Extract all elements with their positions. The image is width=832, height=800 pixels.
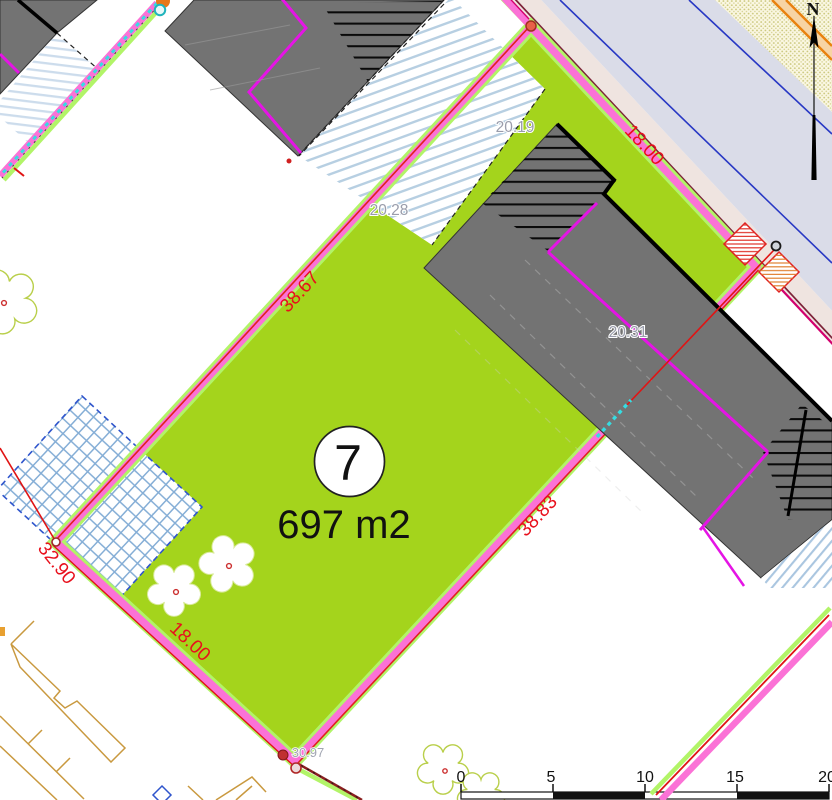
svg-text:5: 5 xyxy=(547,769,556,786)
svg-text:15: 15 xyxy=(726,769,744,786)
svg-text:20.31: 20.31 xyxy=(609,324,648,341)
svg-text:20: 20 xyxy=(818,769,832,786)
svg-text:20.28: 20.28 xyxy=(370,202,409,219)
svg-text:20.19: 20.19 xyxy=(496,119,535,136)
svg-text:30.97: 30.97 xyxy=(292,745,325,760)
svg-text:697 m2: 697 m2 xyxy=(277,503,410,547)
svg-text:7: 7 xyxy=(334,435,362,491)
svg-text:0: 0 xyxy=(457,769,466,786)
svg-text:10: 10 xyxy=(636,769,654,786)
svg-text:N: N xyxy=(807,0,820,19)
